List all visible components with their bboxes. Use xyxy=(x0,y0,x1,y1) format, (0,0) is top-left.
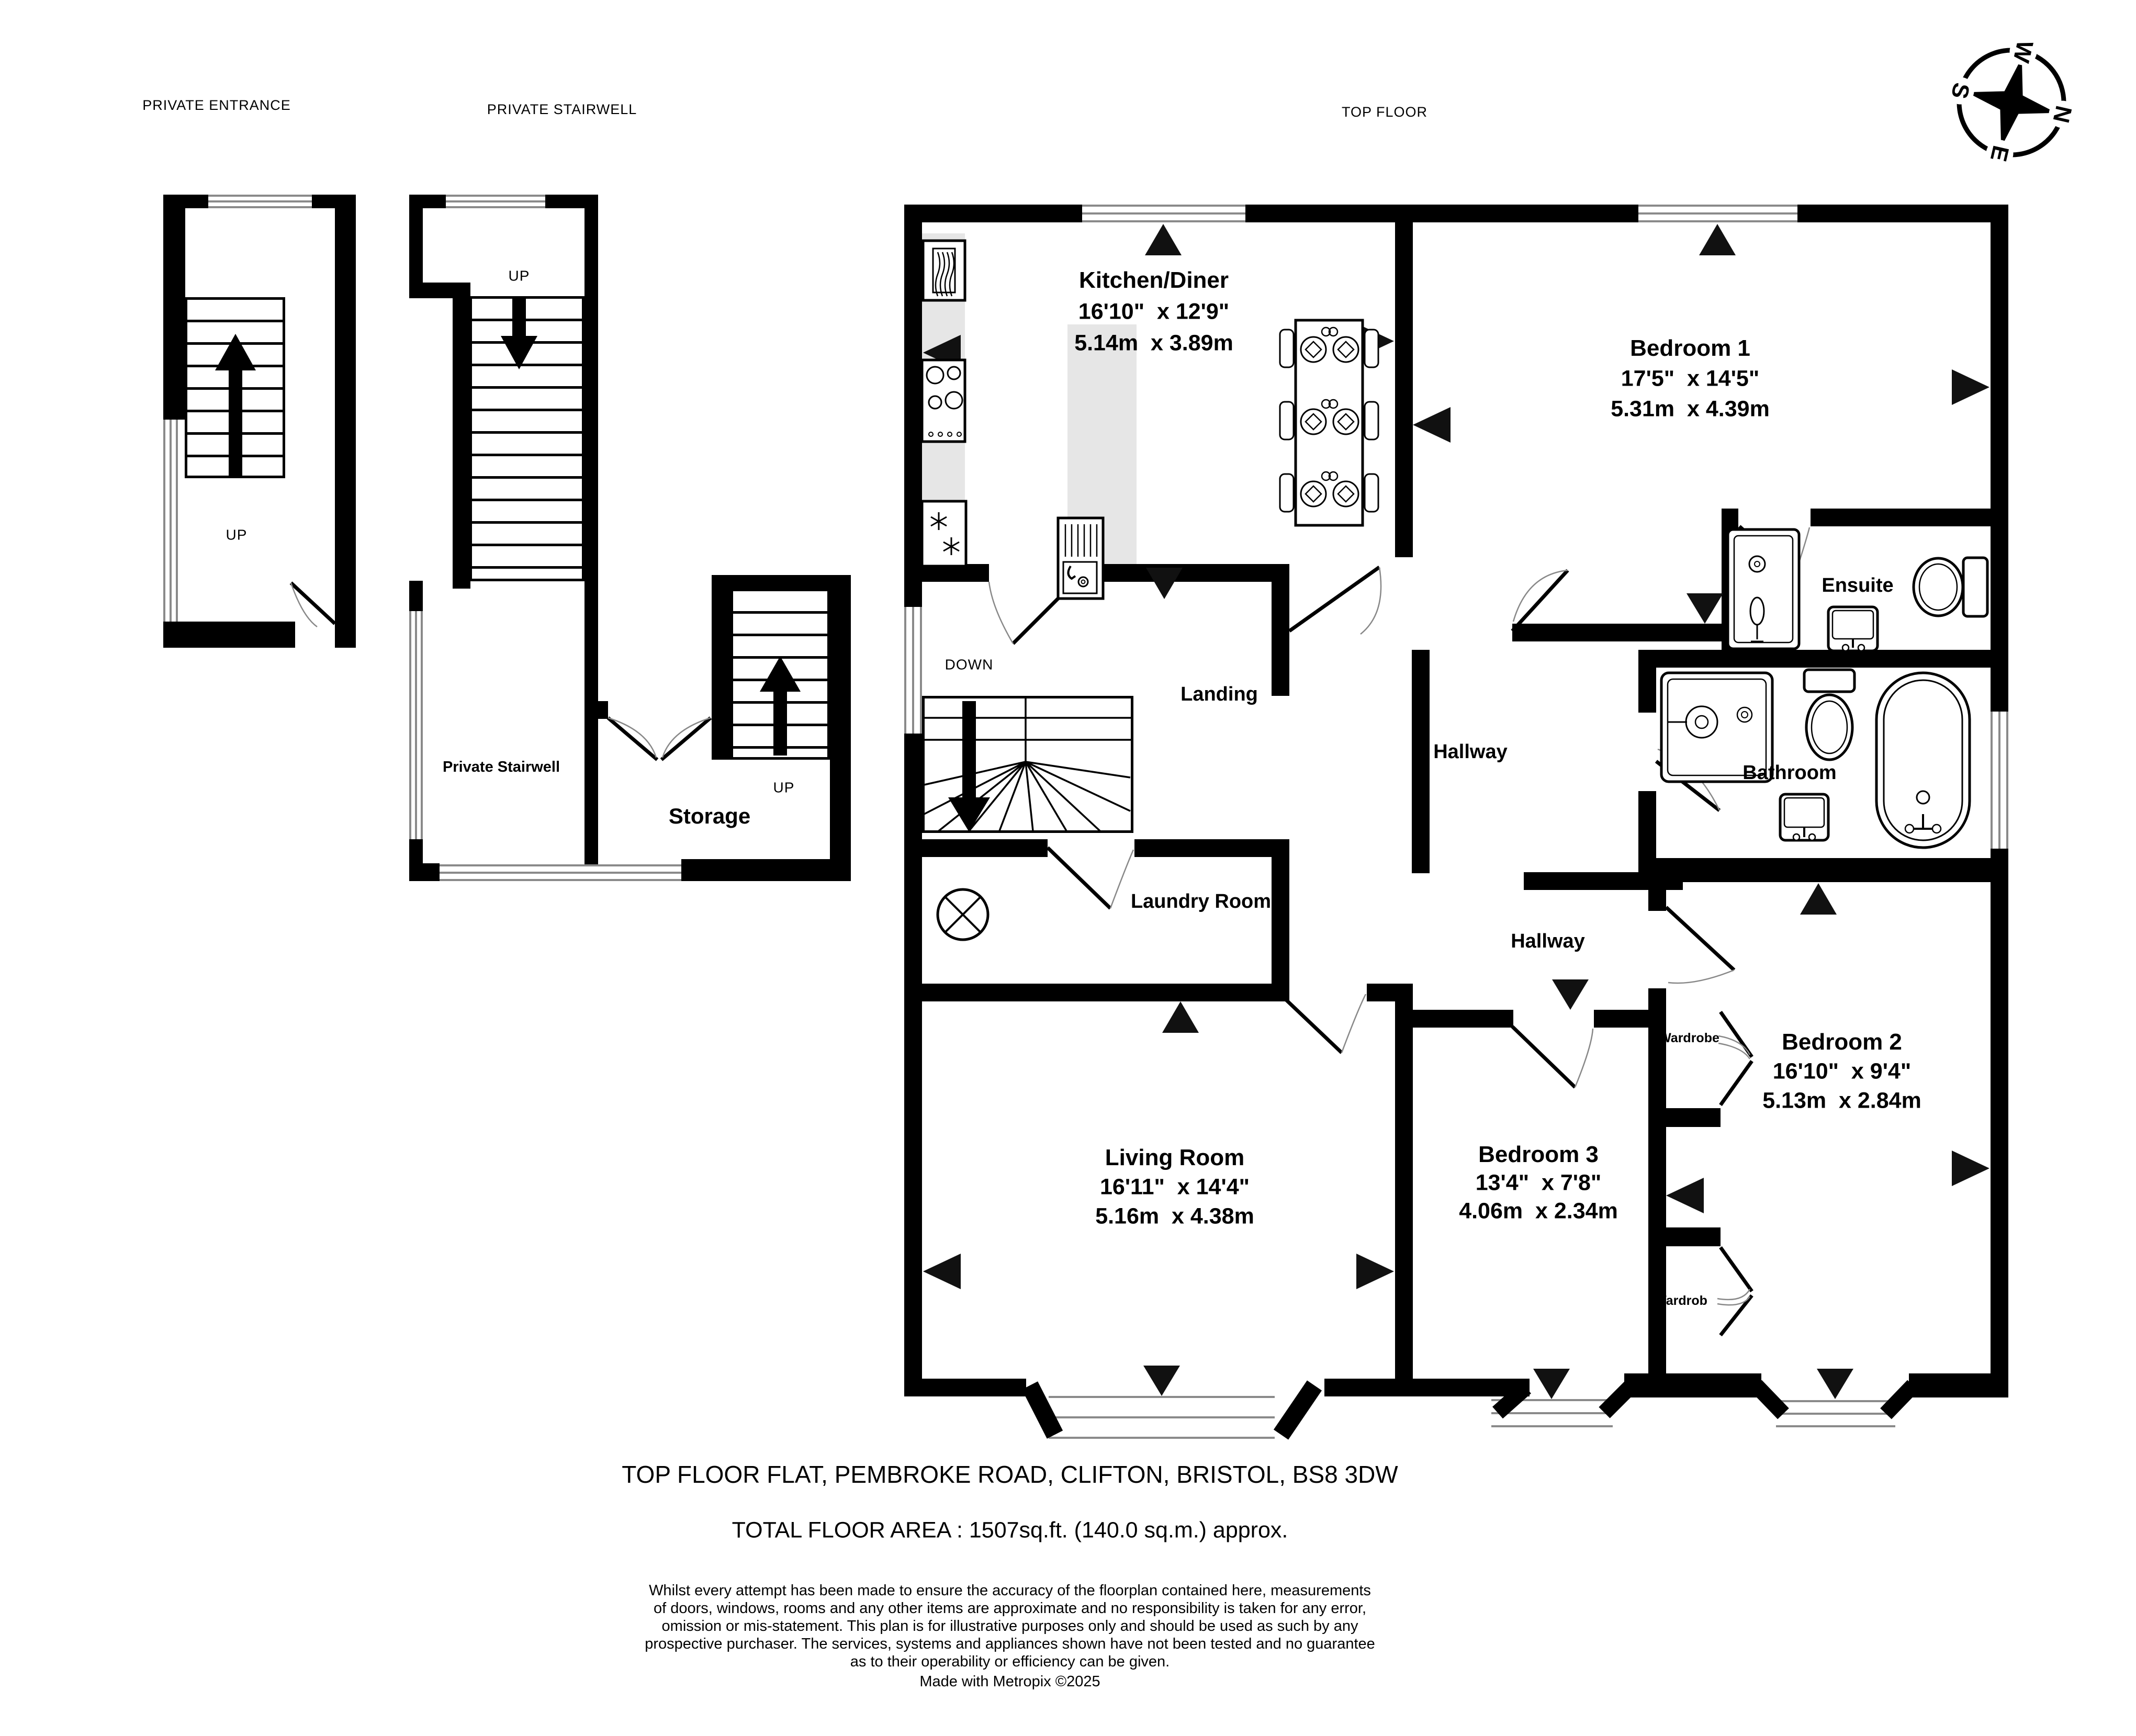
room-label-living: Living Room xyxy=(1105,1146,1244,1170)
ensuite-sink-icon xyxy=(1828,607,1878,651)
room-dims-kitchen-imperial: 16'10" x 12'9" xyxy=(1078,300,1229,323)
room-label-bedroom1: Bedroom 1 xyxy=(1630,336,1750,360)
room-label-landing: Landing xyxy=(1181,684,1258,705)
up-arrow-icon xyxy=(773,691,787,756)
arrow-down-icon xyxy=(1533,1369,1570,1399)
disclaimer-line: prospective purchaser. The services, sys… xyxy=(645,1636,1375,1652)
label-private-entrance: PRIVATE ENTRANCE xyxy=(142,98,291,112)
down-arrow-icon xyxy=(948,797,990,832)
toilet-icon xyxy=(1804,670,1854,760)
up-arrow-icon xyxy=(215,334,256,370)
label-up-stairwell: UP xyxy=(509,268,530,283)
label-up-entrance: UP xyxy=(226,527,248,542)
room-dims-bedroom2-imperial: 16'10" x 9'4" xyxy=(1773,1059,1911,1083)
address-line: TOP FLOOR FLAT, PEMBROKE ROAD, CLIFTON, … xyxy=(622,1462,1398,1487)
arrow-down-icon xyxy=(1552,979,1589,1010)
down-arrow-icon xyxy=(962,701,976,798)
room-label-private-stairwell: Private Stairwell xyxy=(443,759,560,775)
disclaimer-line: of doors, windows, rooms and any other i… xyxy=(654,1600,1366,1616)
hob-icon xyxy=(922,360,965,442)
label-down: DOWN xyxy=(945,657,994,672)
room-dims-living-metric: 5.16m x 4.38m xyxy=(1095,1204,1254,1228)
arrow-up-icon xyxy=(1162,1001,1199,1033)
up-arrow-icon xyxy=(229,369,242,478)
bathtub-icon xyxy=(1876,673,1970,848)
room-dims-bedroom2-metric: 5.13m x 2.84m xyxy=(1762,1089,1921,1112)
arrow-right-icon xyxy=(1952,369,1989,405)
room-dims-kitchen-metric: 5.14m x 3.89m xyxy=(1074,331,1233,355)
ensuite-shower-icon xyxy=(1728,529,1799,649)
room-dims-bedroom1-metric: 5.31m x 4.39m xyxy=(1611,397,1770,421)
disclaimer-line: Whilst every attempt has been made to en… xyxy=(649,1583,1371,1598)
room-label-bathroom: Bathroom xyxy=(1742,763,1836,784)
compass-w: W xyxy=(2008,38,2038,65)
arrow-up-icon xyxy=(1145,224,1182,255)
room-label-kitchen: Kitchen/Diner xyxy=(1079,268,1229,292)
disclaimer-line: omission or mis-statement. This plan is … xyxy=(662,1618,1358,1634)
total-floor-area: TOTAL FLOOR AREA : 1507sq.ft. (140.0 sq.… xyxy=(732,1518,1288,1542)
ensuite-toilet-icon xyxy=(1914,558,1987,616)
washing-machine-icon xyxy=(938,889,988,940)
arrow-left-icon xyxy=(923,1254,961,1289)
sink-icon xyxy=(1780,794,1828,840)
winder-stairs xyxy=(924,698,1131,831)
fridge-icon xyxy=(922,501,966,566)
label-top-floor: TOP FLOOR xyxy=(1342,105,1427,119)
arrow-down-icon xyxy=(1143,1366,1180,1396)
arrow-right-icon xyxy=(1952,1151,1989,1186)
label-private-stairwell-header: PRIVATE STAIRWELL xyxy=(487,102,637,117)
down-arrow-icon xyxy=(512,298,526,337)
room-label-bedroom2: Bedroom 2 xyxy=(1782,1030,1902,1054)
oven-icon xyxy=(923,241,965,300)
room-dims-living-imperial: 16'11" x 14'4" xyxy=(1100,1175,1250,1199)
up-arrow-icon xyxy=(760,656,801,692)
stair-arrows xyxy=(215,298,990,832)
arrow-right-icon xyxy=(1356,1254,1394,1289)
disclaimer-line: as to their operability or efficiency ca… xyxy=(850,1654,1170,1670)
label-wardrobe-lower: Wardrob xyxy=(1654,1294,1707,1307)
room-label-laundry: Laundry Room xyxy=(1131,892,1271,912)
room-label-hallway-lower: Hallway xyxy=(1511,931,1585,952)
room-label-ensuite: Ensuite xyxy=(1822,576,1893,596)
room-dims-bedroom1-imperial: 17'5" x 14'5" xyxy=(1621,367,1759,390)
arrow-down-icon xyxy=(1687,593,1723,624)
room-label-storage: Storage xyxy=(669,805,750,828)
arrow-up-icon xyxy=(1699,224,1736,255)
kitchen-sink-icon xyxy=(1058,518,1103,599)
label-up-storage: UP xyxy=(773,780,795,795)
credit-line: Made with Metropix ©2025 xyxy=(919,1674,1100,1689)
label-wardrobe-upper: Wardrobe xyxy=(1659,1031,1719,1045)
arrow-left-icon xyxy=(1666,1178,1704,1213)
room-dims-bedroom3-imperial: 13'4" x 7'8" xyxy=(1476,1171,1602,1194)
arrow-up-icon xyxy=(1800,883,1837,915)
room-label-bedroom3: Bedroom 3 xyxy=(1478,1143,1599,1167)
arrow-down-icon xyxy=(1146,568,1183,599)
room-dims-bedroom3-metric: 4.06m x 2.34m xyxy=(1459,1199,1618,1223)
arrow-down-icon xyxy=(1817,1369,1853,1399)
down-arrow-icon xyxy=(501,336,537,369)
compass-icon: N E S W xyxy=(1932,24,2090,182)
dining-table-icon xyxy=(1280,320,1378,525)
room-label-hallway-upper: Hallway xyxy=(1433,742,1508,763)
arrow-left-icon xyxy=(1413,407,1451,443)
